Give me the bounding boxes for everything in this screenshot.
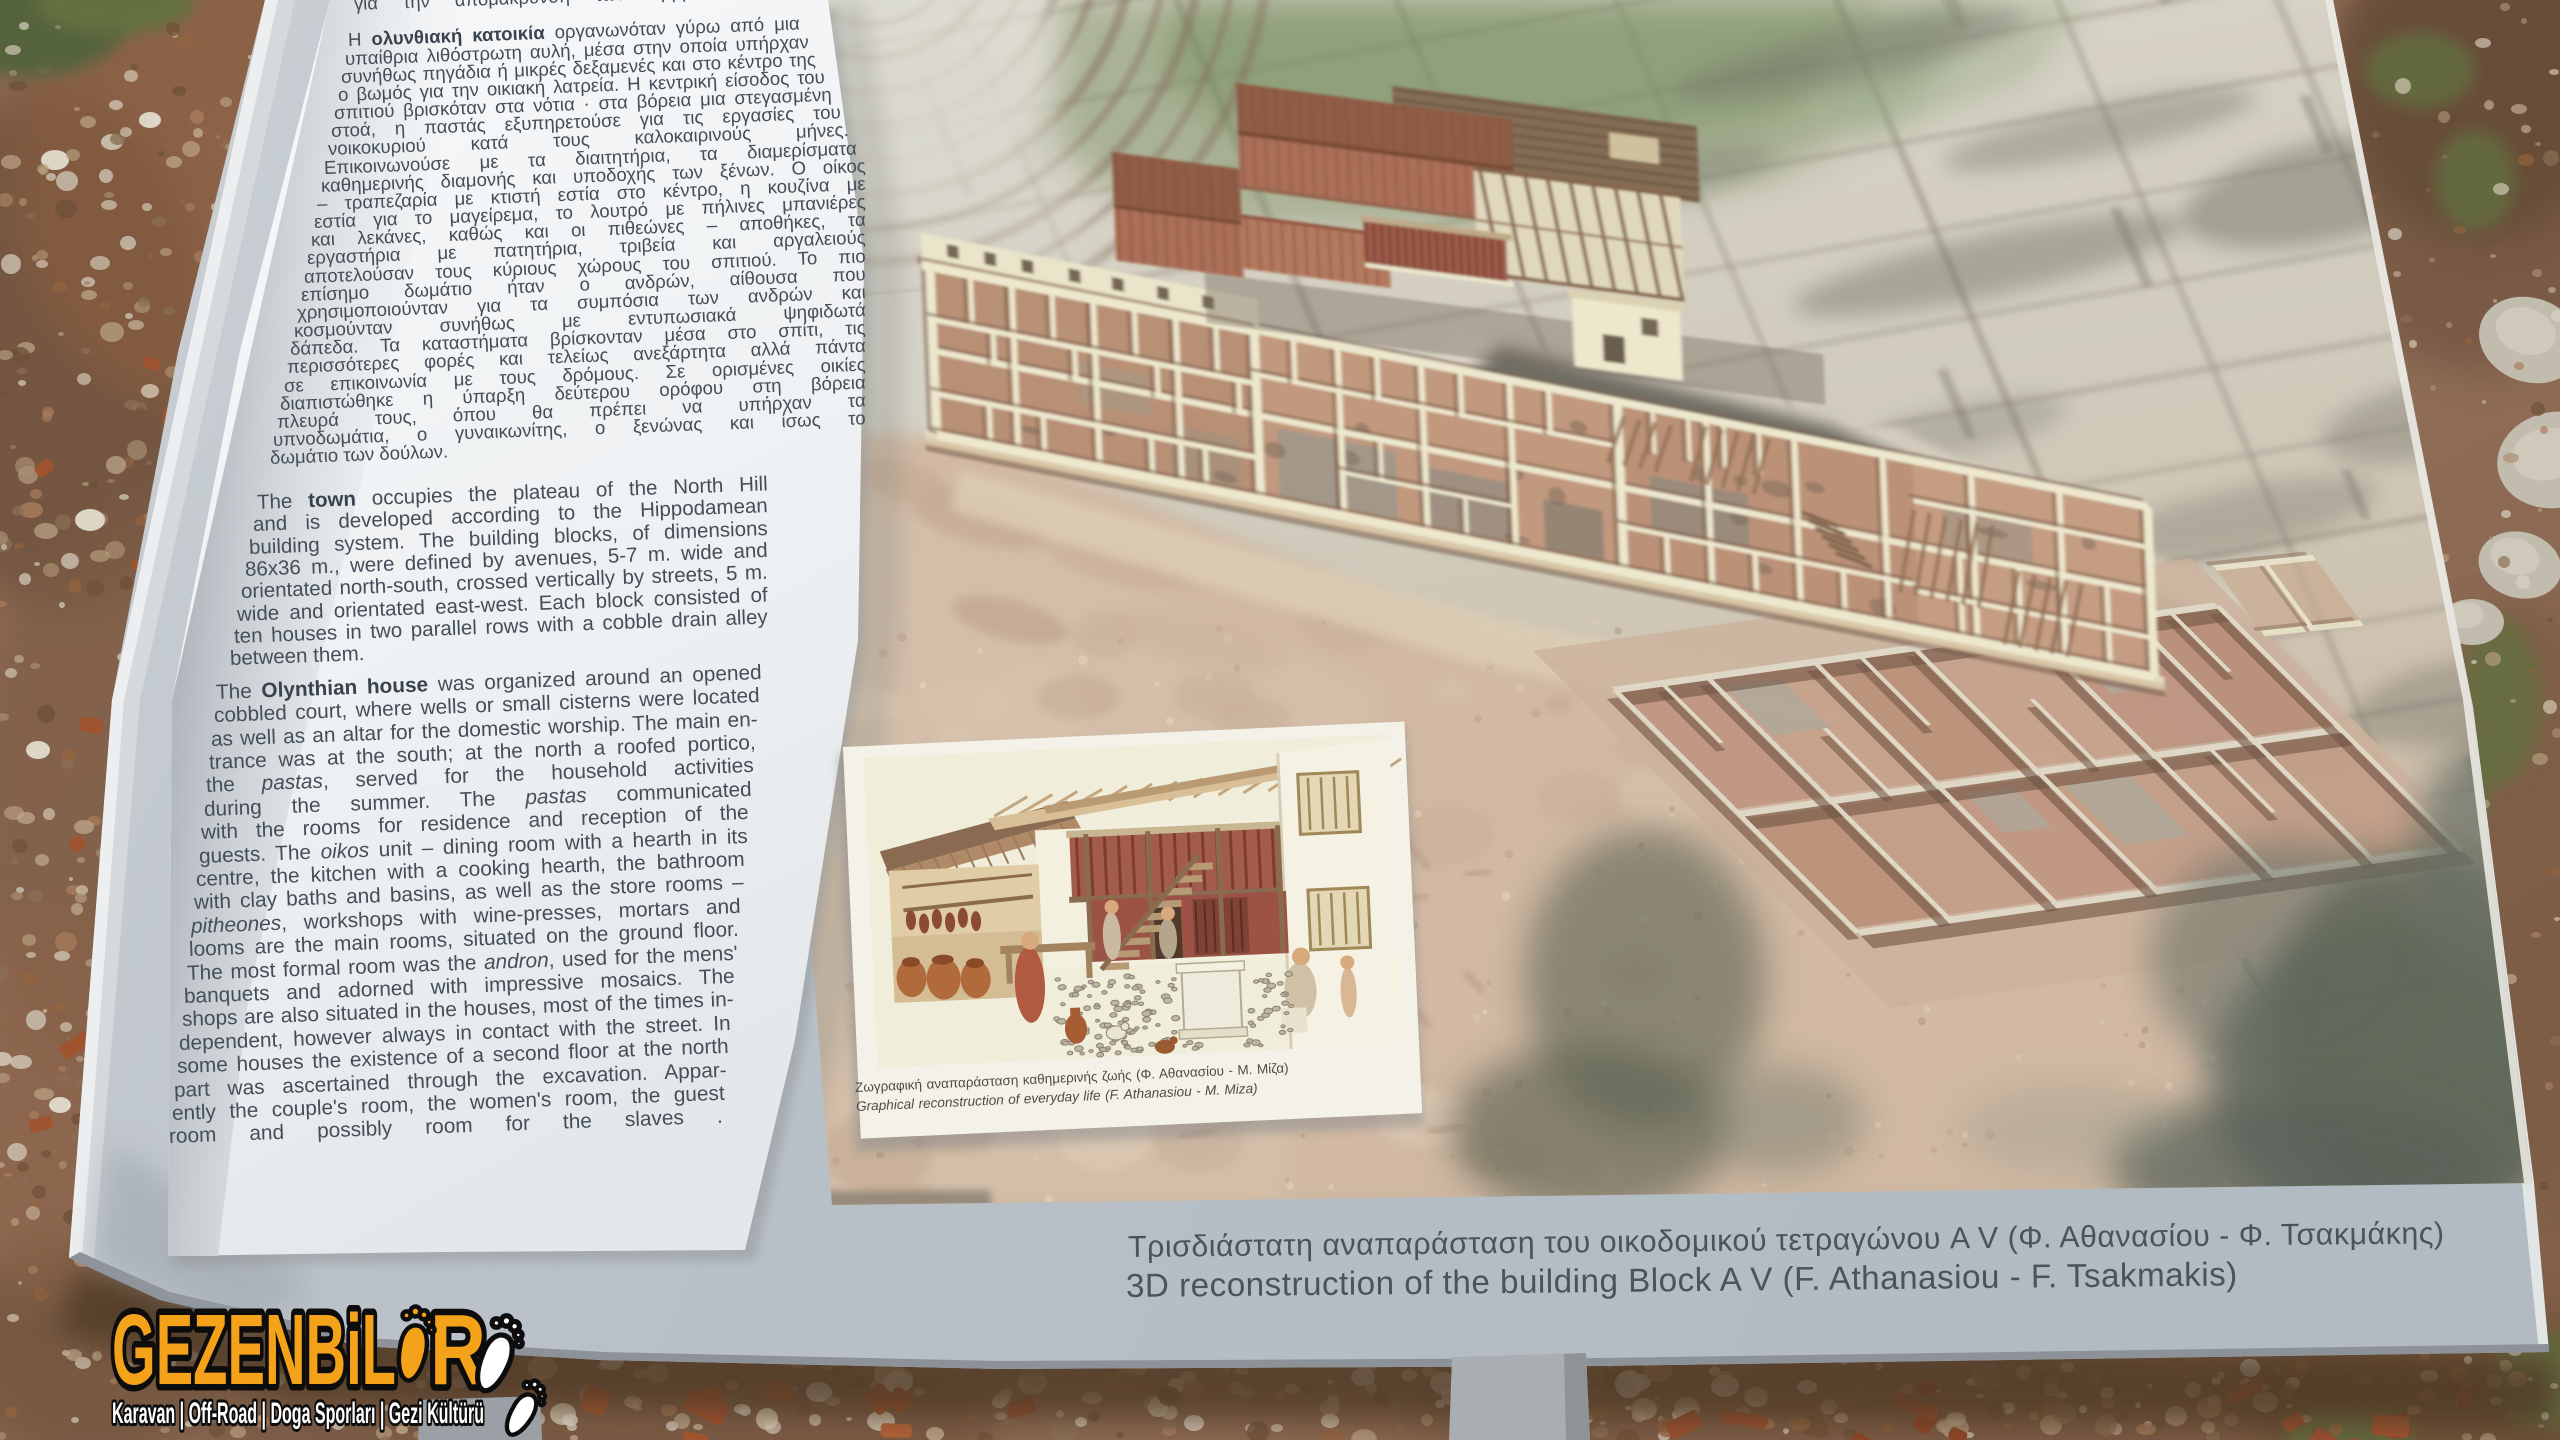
svg-text:R: R — [430, 1294, 486, 1406]
svg-text:Karavan | Off-Road | Doga Spor: Karavan | Off-Road | Doga Sporları | Gez… — [112, 1397, 484, 1430]
svg-text:GEZENBiL: GEZENBiL — [112, 1294, 396, 1406]
